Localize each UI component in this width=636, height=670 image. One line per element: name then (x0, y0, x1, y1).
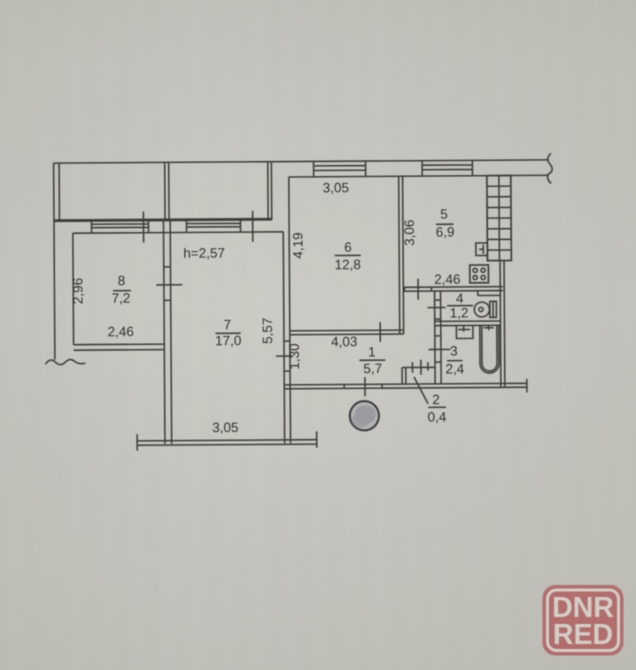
svg-text:RED: RED (553, 619, 613, 651)
